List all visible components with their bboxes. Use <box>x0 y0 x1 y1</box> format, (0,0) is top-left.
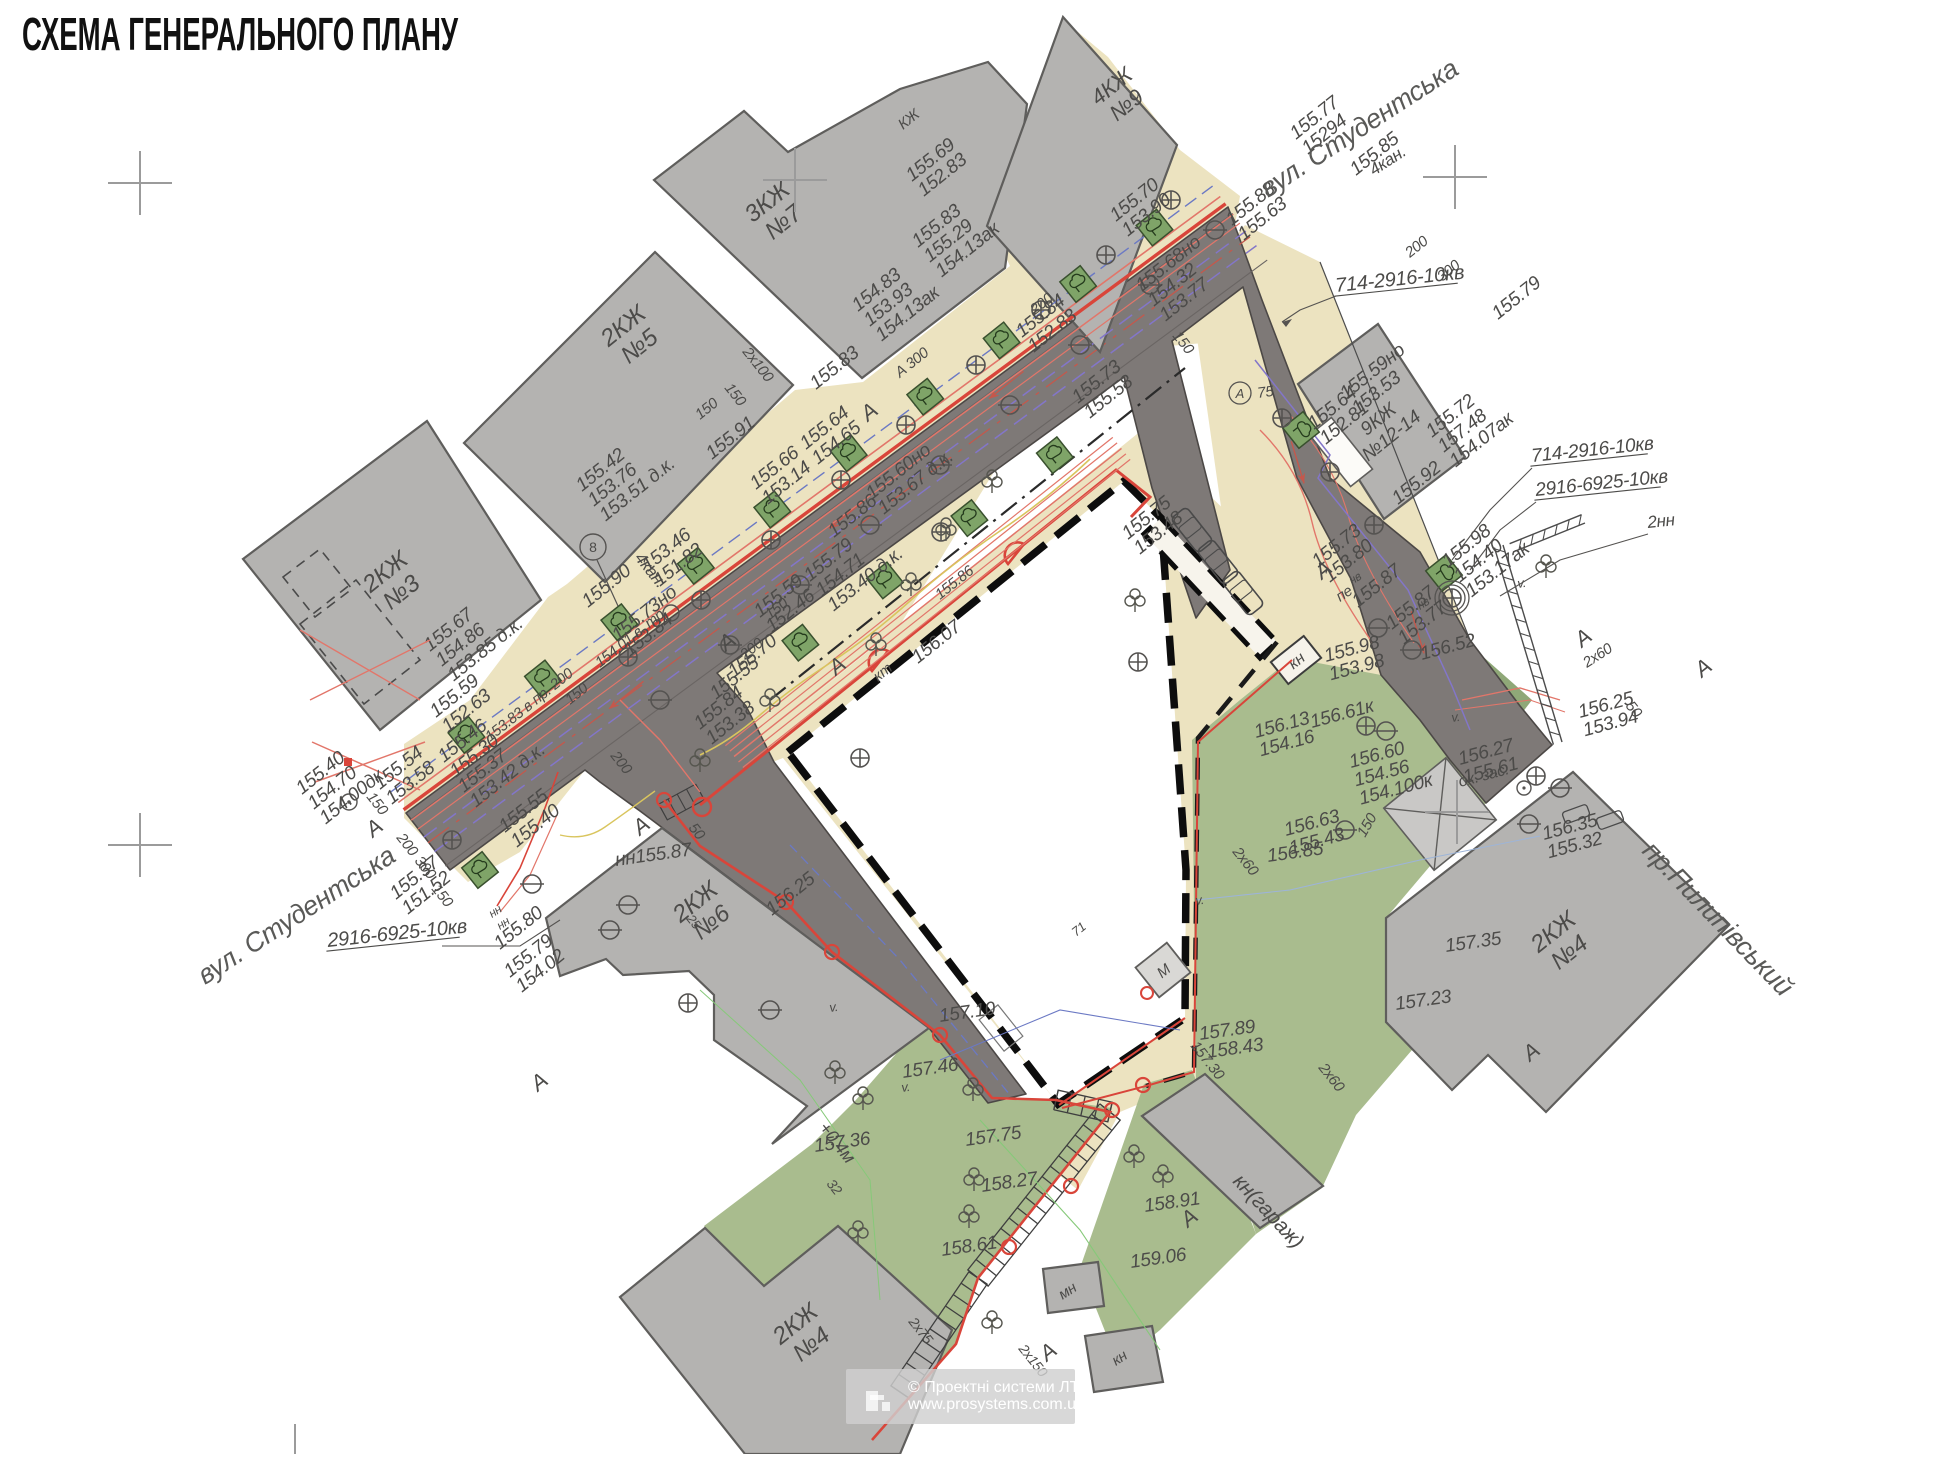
svg-text:2нн: 2нн <box>1645 510 1676 532</box>
svg-text:www.prosystems.com.ua: www.prosystems.com.ua <box>907 1396 1085 1413</box>
svg-text:СХЕМА ГЕНЕРАЛЬНОГО ПЛАНУ: СХЕМА ГЕНЕРАЛЬНОГО ПЛАНУ <box>22 10 458 61</box>
svg-text:8: 8 <box>589 539 597 555</box>
svg-text:А: А <box>1235 386 1245 401</box>
svg-text:© Проектні системи ЛТД: © Проектні системи ЛТД <box>908 1379 1090 1396</box>
